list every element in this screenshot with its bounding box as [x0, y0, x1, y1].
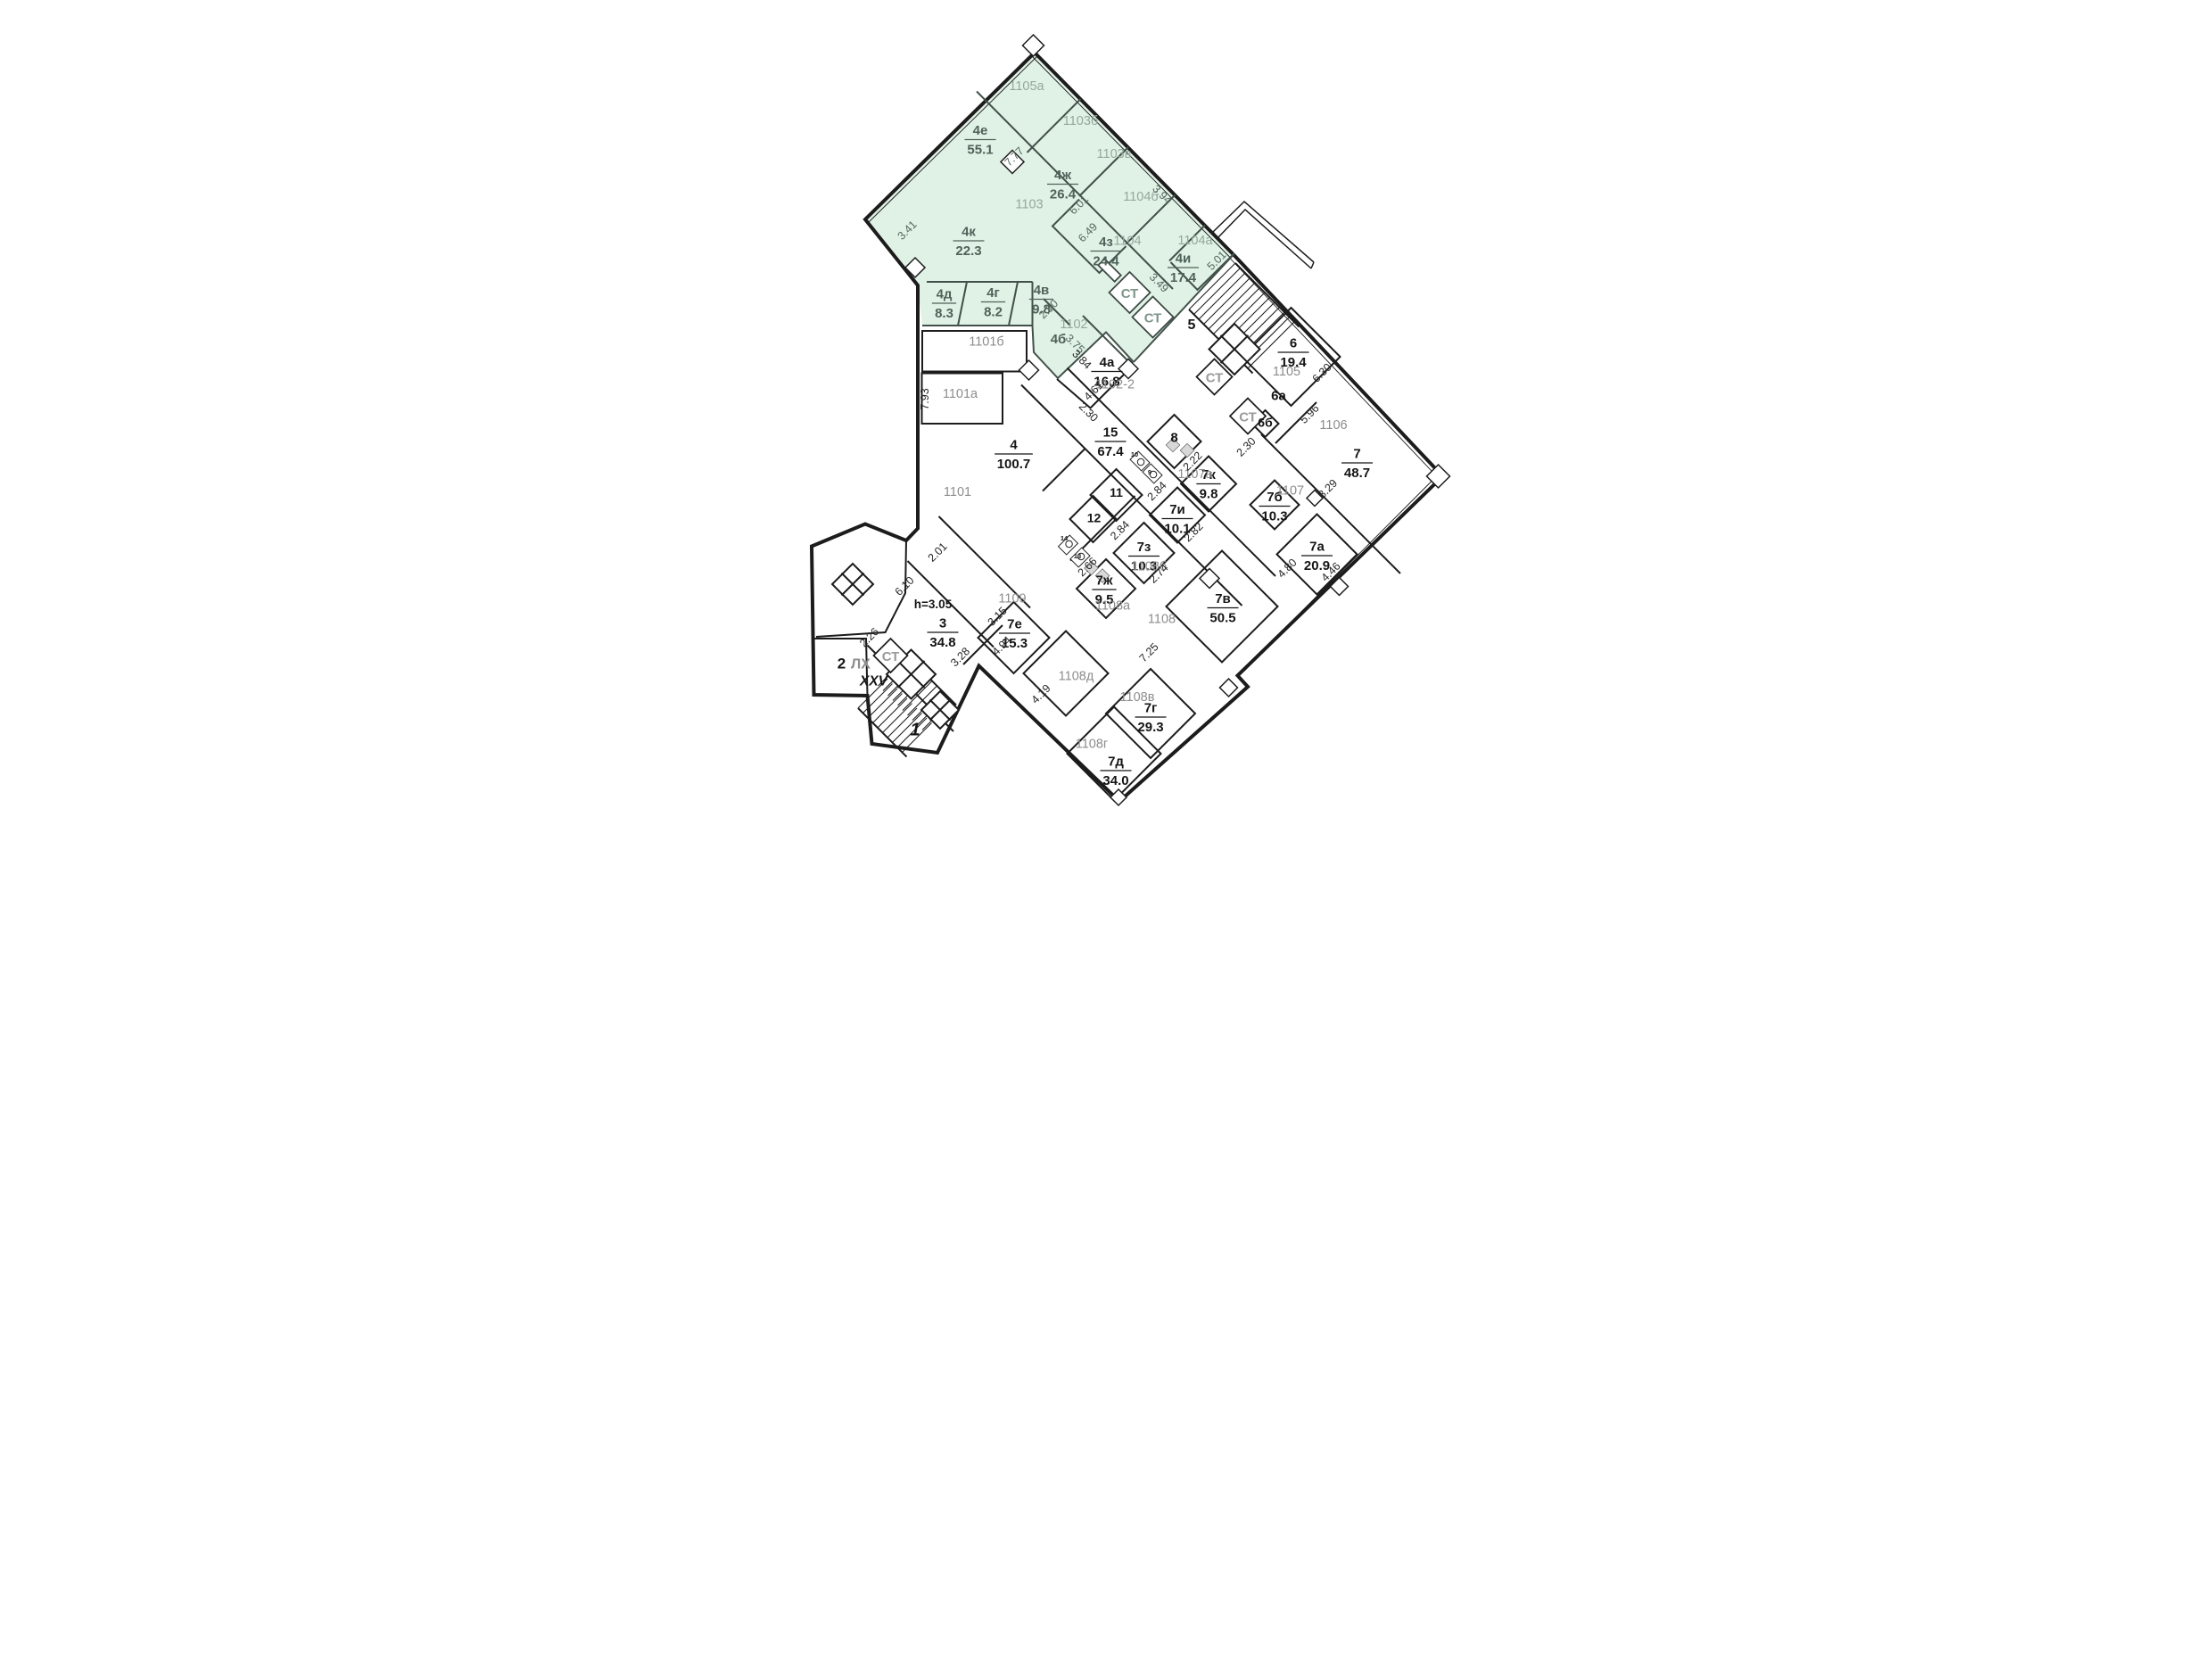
- room-area: 48.7: [1344, 466, 1370, 481]
- room-area: 9.8: [1200, 487, 1218, 502]
- room-id-label: 1103: [1015, 198, 1043, 212]
- room-number: 3: [939, 616, 946, 631]
- room-number: 4ж: [1054, 168, 1071, 183]
- dimension-label: 3.15: [986, 605, 1010, 629]
- highlight-polygon: [865, 53, 1234, 378]
- vent-label: СТ: [1144, 311, 1162, 326]
- room-id-label: 1107а: [1177, 467, 1213, 482]
- room-label-7д: 7д34.0: [1101, 755, 1132, 789]
- room-number: 6: [1290, 336, 1297, 351]
- dimension-label: 2.30: [1077, 400, 1101, 425]
- room-number: 15: [1103, 425, 1118, 441]
- dimension-label: 6.10: [893, 574, 917, 598]
- elevator-shaft: [832, 564, 873, 605]
- room-number: 4в: [1034, 283, 1050, 298]
- plain-label-2: 2: [838, 656, 846, 672]
- room-number: 7з: [1137, 540, 1151, 555]
- room-number: 7в: [1215, 591, 1231, 606]
- room-label-3: 334.8: [928, 616, 959, 651]
- room-id-label: 1108а: [1095, 599, 1131, 614]
- vent-label: СТ: [1239, 410, 1257, 425]
- plain-label-5: 5: [1188, 318, 1196, 333]
- dimension-label: 2.26: [857, 625, 881, 649]
- room-number: 7а: [1309, 540, 1325, 555]
- room-id-label: 1105: [1273, 365, 1300, 379]
- room-number: 7ж: [1096, 573, 1113, 589]
- room-number: 4д: [937, 287, 953, 302]
- room-label-15: 1567.4: [1095, 425, 1127, 460]
- room-id-label: 1108: [1148, 613, 1176, 627]
- room-number: 7: [1353, 447, 1360, 462]
- room-id-label: 1101: [944, 485, 971, 499]
- room-label-4: 4100.7: [995, 438, 1033, 473]
- fixture-number: 13: [1074, 552, 1081, 560]
- room-area: 50.5: [1209, 611, 1235, 626]
- plain-label-8: 8: [1170, 431, 1177, 446]
- stair-step: [1204, 278, 1250, 325]
- floor-plan-svg: 4е55.14ж26.44к22.34з24.44и17.44д8.34г8.2…: [553, 0, 1659, 829]
- highlight-zone: [865, 53, 1234, 378]
- room-id-label: 1103б: [1063, 114, 1099, 128]
- room-number: 4и: [1176, 252, 1192, 267]
- room-number: 4г: [986, 285, 1000, 301]
- room-number: 7е: [1007, 617, 1022, 632]
- room-area: 8.3: [935, 306, 953, 321]
- room-number: 4: [1010, 438, 1018, 453]
- dimension-label: 2.01: [926, 540, 950, 565]
- fixture-number: 9: [1148, 468, 1151, 476]
- room-id-label: 1105а: [1009, 79, 1044, 94]
- room-area: 17.4: [1170, 270, 1197, 285]
- room-label-7: 748.7: [1341, 447, 1373, 482]
- plain-label-12: 12: [1087, 511, 1102, 525]
- room-area: 29.3: [1137, 720, 1163, 735]
- room-number: 4з: [1099, 235, 1113, 250]
- dimension-label: 4.80: [1275, 557, 1300, 581]
- dimension-label: 2.30: [1234, 435, 1259, 459]
- fixture-number: 10: [1131, 450, 1138, 458]
- room-id-label: 1109: [998, 592, 1026, 606]
- dimension-label: 7.25: [1137, 640, 1161, 664]
- room-id-label: 1101а: [943, 387, 978, 401]
- room-number: 7и: [1169, 502, 1185, 517]
- room-number: 7д: [1108, 755, 1124, 770]
- plain-label-6б: 6б: [1258, 416, 1273, 430]
- stair-step: [1209, 283, 1255, 329]
- room-id-label: 1102: [1060, 318, 1087, 332]
- room-area: 67.4: [1097, 444, 1124, 459]
- room-id-label: 1108д: [1059, 670, 1094, 684]
- room-id-label: 1104а: [1177, 234, 1213, 248]
- room-area: 34.0: [1102, 773, 1128, 788]
- vent-label: СТ: [1206, 371, 1224, 386]
- plain-label-11: 11: [1110, 485, 1123, 499]
- plain-label-ЛХ: ЛХ: [851, 657, 871, 672]
- room-id-label: 1108г: [1076, 738, 1108, 752]
- room-id-label: 1104: [1113, 235, 1141, 249]
- vent-label: СТ: [1121, 286, 1139, 301]
- fixture-number: 14: [1061, 534, 1069, 542]
- plain-label-XXV: XXV: [859, 674, 889, 689]
- room-area: 8.2: [984, 305, 1003, 320]
- room-id-label: 1107: [1276, 484, 1304, 499]
- room-area: 24.4: [1093, 254, 1119, 269]
- room-area: 26.4: [1050, 187, 1077, 202]
- page: 4е55.14ж26.44к22.34з24.44и17.44д8.34г8.2…: [553, 0, 1659, 829]
- room-area: 34.8: [929, 635, 955, 650]
- dimension-label: 7.93: [919, 388, 931, 409]
- room-id-label: 1103в: [1097, 147, 1132, 161]
- room-area: 10.3: [1261, 509, 1287, 524]
- room-id-label: 1101б: [969, 335, 1004, 350]
- room-number: 4к: [962, 225, 976, 240]
- main-inner-walls: [814, 263, 1401, 801]
- plain-label-1: 1: [910, 721, 920, 740]
- plain-label-6а: 6а: [1271, 389, 1286, 404]
- room-id-label: 1108в: [1120, 690, 1155, 705]
- dimension-label: 5.96: [1298, 402, 1322, 426]
- room-id-label: 1106: [1319, 418, 1347, 433]
- room-number: 4а: [1100, 355, 1115, 370]
- room-number: 4е: [973, 123, 988, 138]
- room-area: 100.7: [997, 457, 1031, 472]
- room-area: 22.3: [955, 243, 981, 259]
- room-label-7г: 7г29.3: [1135, 701, 1167, 736]
- vent-label: СТ: [882, 649, 900, 664]
- plain-label-h=3.05: h=3.05: [914, 598, 953, 611]
- dimension-label: 4.19: [1029, 682, 1053, 706]
- room-area: 55.1: [967, 143, 993, 158]
